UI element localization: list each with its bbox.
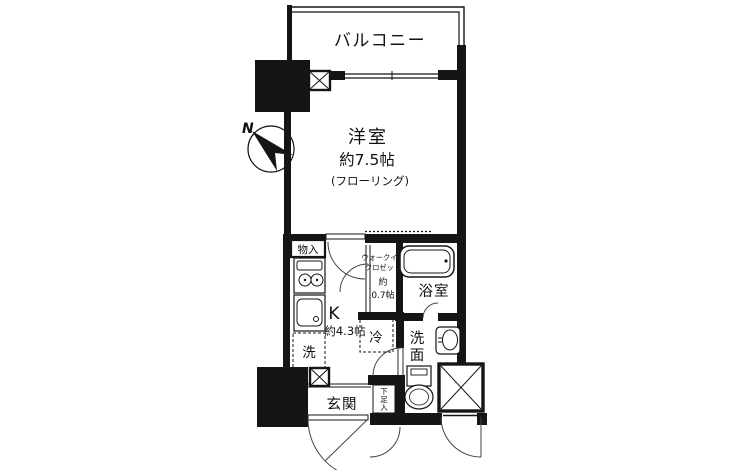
sliding-window-icon: [345, 71, 438, 80]
washroom-door-arc: [373, 348, 401, 376]
bathtub-icon: [400, 246, 454, 277]
washroom-label-char2: 面: [410, 348, 425, 364]
floorplan-canvas: バルコニー: [0, 0, 730, 470]
floorplan: バルコニー: [0, 0, 730, 470]
entrance-door-arc: [308, 419, 368, 470]
wic-bottom-wall: [358, 312, 404, 320]
entrance-side-door-arc: [370, 427, 400, 457]
compass-north-label: N: [242, 121, 254, 137]
door-arcs: [308, 242, 481, 470]
entrance-door-frame: [308, 415, 368, 420]
laundry-label: 洗: [302, 345, 316, 361]
hall-genkan-divider-wall: [368, 375, 405, 385]
kitchen-size-label: 約4.3帖: [324, 324, 365, 338]
pipe-space-top-icon: [309, 71, 330, 90]
pipe-space-genkan-icon: [310, 368, 329, 386]
kitchen-sink-icon: [294, 295, 325, 331]
main-room-name: 洋室: [348, 127, 388, 148]
balcony: バルコニー: [287, 5, 464, 62]
entrance-label: 玄関: [327, 396, 358, 413]
meter-box-door-arc: [441, 417, 481, 457]
storage-box: 物入: [291, 240, 325, 257]
entrance: 玄関 下 足 入: [327, 385, 396, 413]
main-room-size: 約7.5帖: [339, 151, 395, 169]
pillar-bottom-left: [257, 367, 308, 427]
pillar-top-left: [255, 60, 310, 112]
mid-wall-right: [365, 234, 460, 243]
bottom-wall: [370, 413, 442, 425]
top-wall-right-segment: [438, 70, 460, 80]
meter-box-icon: [439, 364, 483, 411]
main-room: 洋室 約7.5帖 (フローリング): [331, 127, 409, 188]
shoebox-right-wall: [395, 385, 405, 413]
kitchen-type-label: K: [328, 304, 340, 324]
main-room-flooring: (フローリング): [331, 174, 409, 188]
stove-icon: [294, 258, 325, 293]
balcony-label: バルコニー: [334, 31, 426, 51]
shoe-box: 下 足 入: [373, 385, 395, 413]
bath-bottom-wall-right: [438, 313, 466, 321]
entrance-door-leaf: [325, 419, 368, 461]
bath-door-arc: [423, 303, 438, 318]
wic-label-line4: 0.7帖: [371, 289, 394, 301]
washroom-left-wall: [396, 320, 404, 348]
storage-label: 物入: [298, 243, 319, 256]
wic-label-line1: ウォークイン: [361, 253, 404, 262]
fridge-label: 冷: [369, 330, 383, 346]
room-door-frame: [326, 234, 365, 239]
bathroom: 浴室: [400, 246, 454, 300]
left-wall-lower: [283, 237, 290, 367]
washbasin-icon: [436, 327, 460, 354]
wic-label-line3: 約: [378, 276, 387, 288]
laundry-pan: 洗: [293, 333, 325, 368]
balcony-left-wall: [287, 5, 292, 62]
washroom-label-char1: 洗: [410, 330, 425, 347]
wic-door-arc: [340, 264, 368, 292]
shoe-box-char3: 入: [380, 403, 388, 412]
wic-label-line2: クロゼット: [365, 263, 401, 272]
bath-label: 浴室: [419, 283, 450, 300]
toilet-icon: [405, 366, 433, 409]
